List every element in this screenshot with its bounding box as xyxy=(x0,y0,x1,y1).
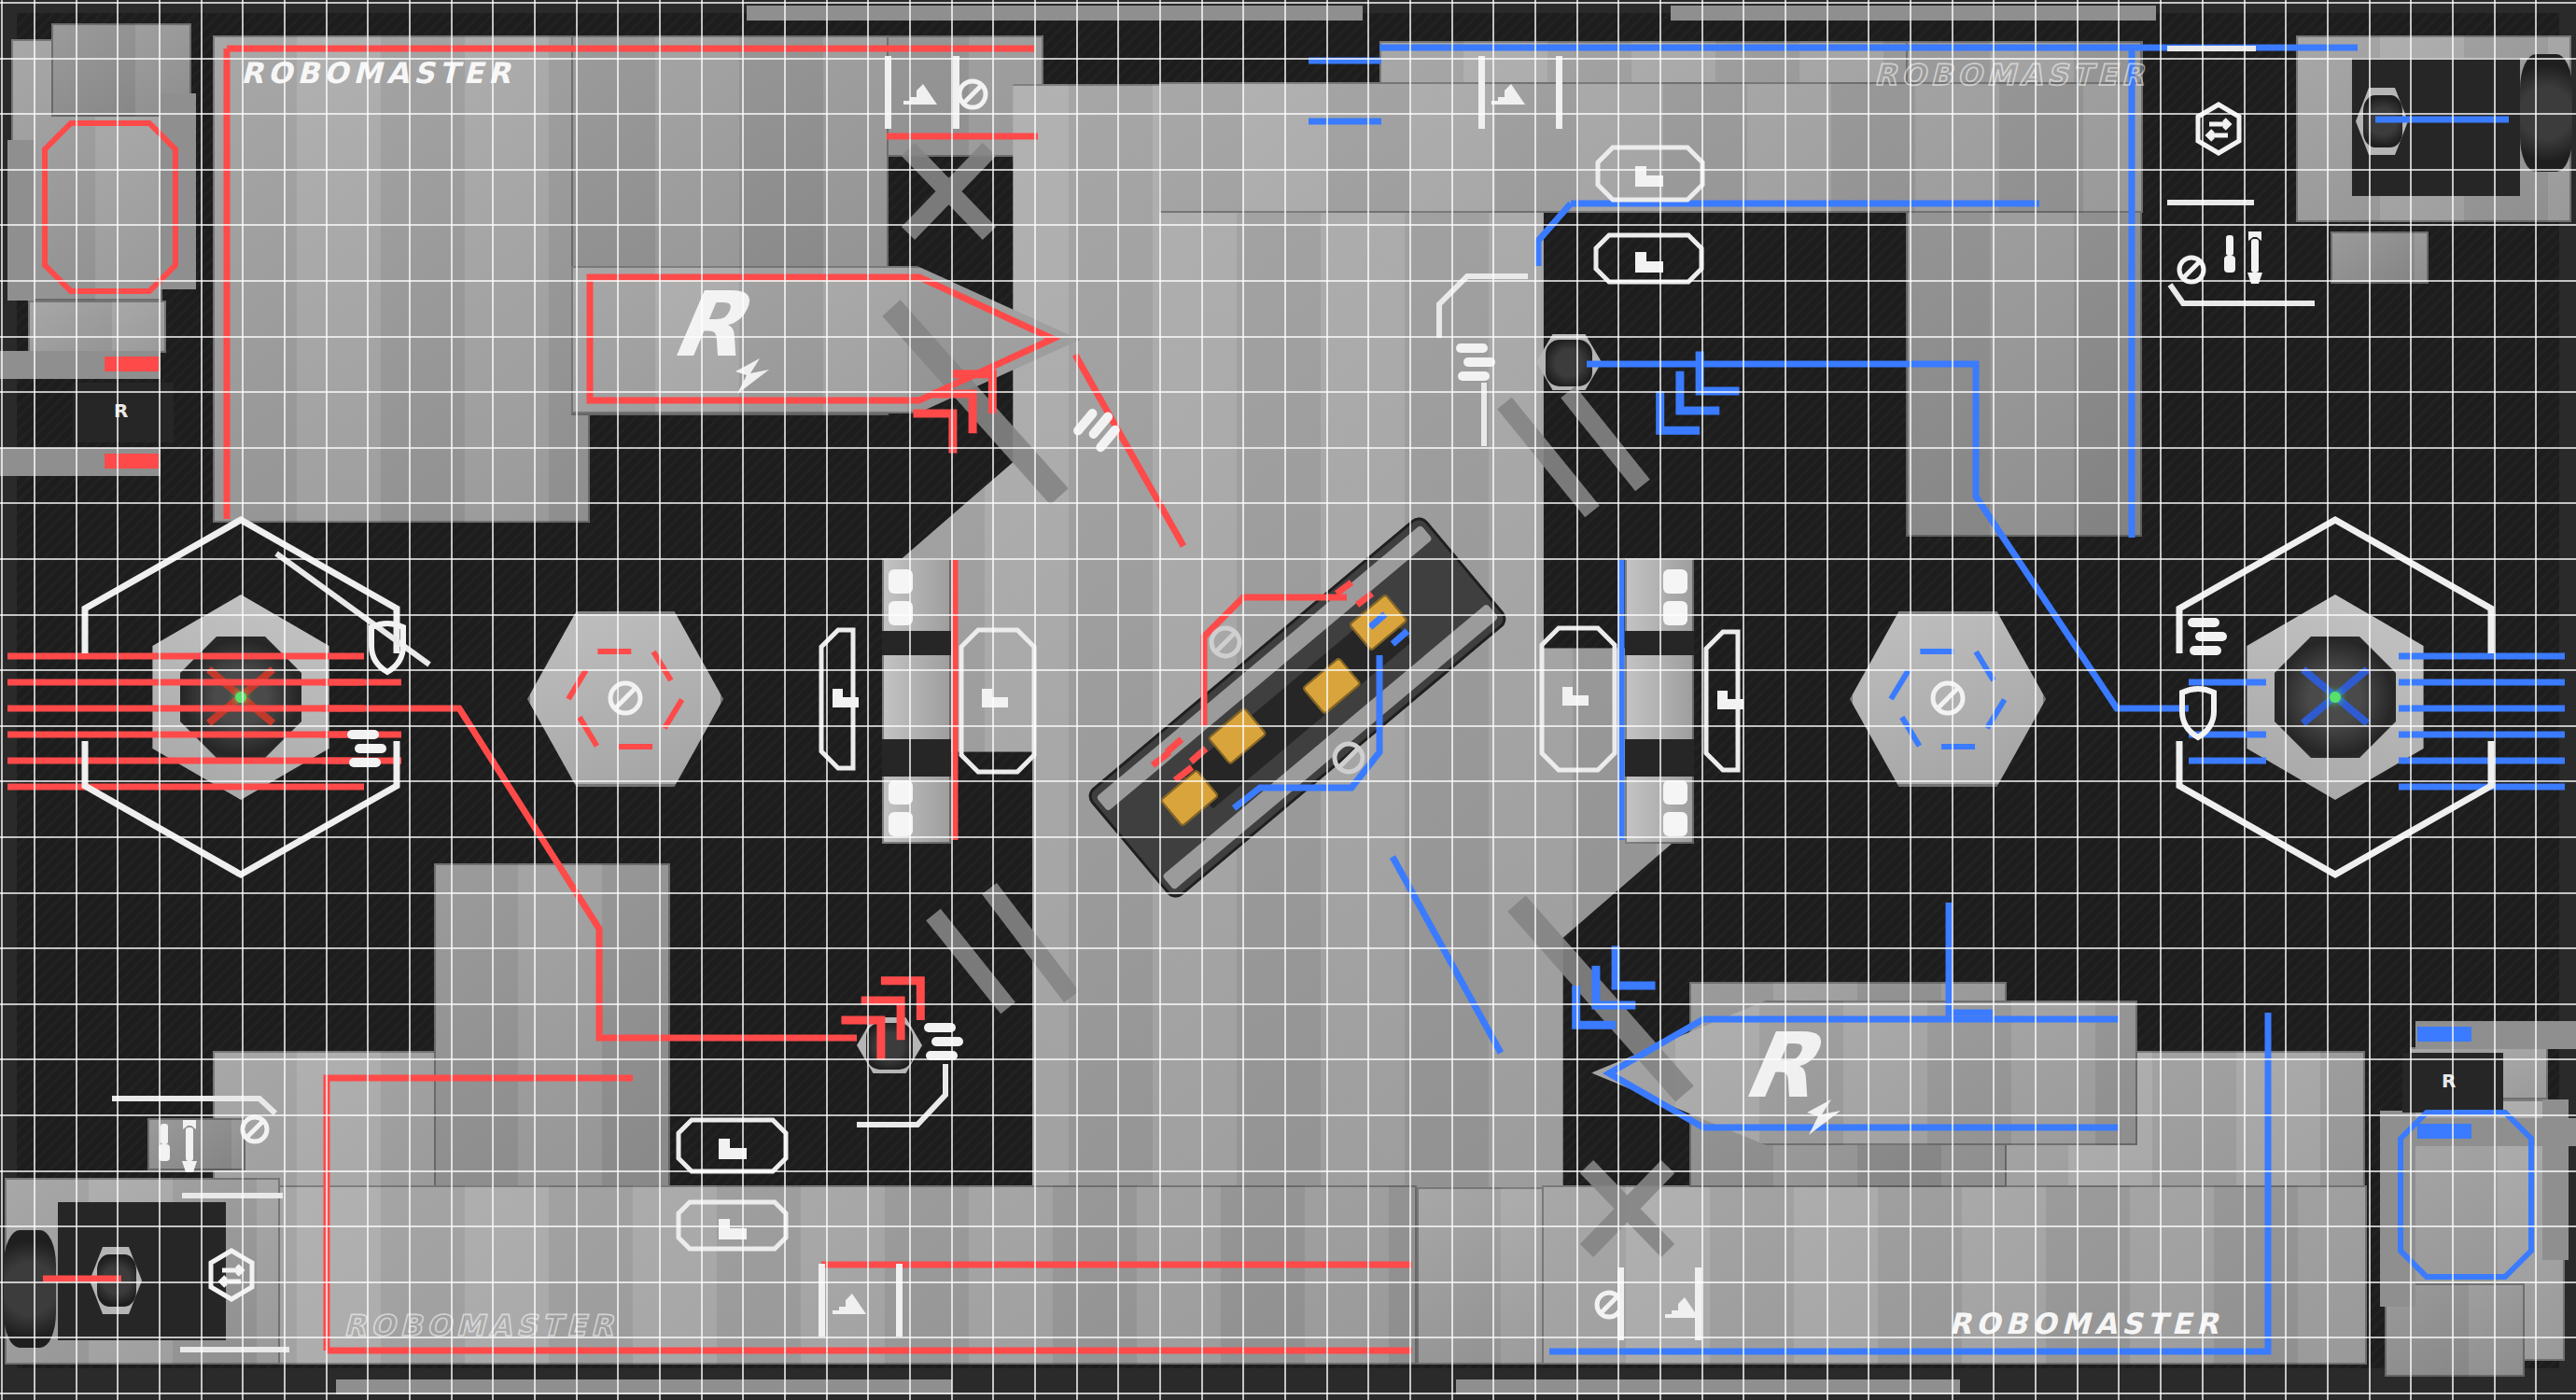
no-entry-icon xyxy=(959,81,986,107)
no-entry-icon xyxy=(1211,628,1239,656)
repair-tools-icon xyxy=(2224,231,2262,284)
no-entry-icon xyxy=(1335,744,1363,772)
exchange-station-icon xyxy=(211,1251,252,1299)
ammo-bullets-icon xyxy=(1071,401,1126,455)
no-entry-icons xyxy=(243,81,2204,1317)
blue-outpost-lines-right xyxy=(2399,656,2565,787)
blue-patrol-path xyxy=(1587,364,2189,708)
repair-tools-icon xyxy=(159,1120,197,1172)
shield-icons xyxy=(371,623,2214,737)
wordmark-top-left: ROBOMASTER xyxy=(241,56,515,90)
no-entry-icon xyxy=(610,683,640,713)
red-central-bracket xyxy=(1167,597,1347,762)
no-entry-icon xyxy=(2179,258,2204,282)
slope-icon xyxy=(903,84,937,105)
ammo-bullets-icon xyxy=(924,1023,963,1060)
wordmark-bottom-left: ROBOMASTER xyxy=(343,1309,618,1342)
no-entry-icon xyxy=(1933,683,1963,713)
blue-central-bracket xyxy=(1234,614,1407,808)
blue-outpost-lines-left xyxy=(2189,682,2266,761)
red-outpost-lines-left xyxy=(7,656,364,787)
shield-icon xyxy=(2182,689,2214,737)
red-patrol-path xyxy=(322,708,857,1038)
step-icons xyxy=(719,166,1743,1239)
blue-base-zone-outline xyxy=(2401,1113,2531,1277)
no-entry-icon xyxy=(243,1117,267,1141)
red-team-lines xyxy=(7,49,1412,1351)
ammo-bullets-icon xyxy=(2188,618,2227,655)
white-floor-lines xyxy=(112,49,2315,1350)
slope-icon xyxy=(1665,1297,1699,1318)
red-ramp-outline xyxy=(590,277,1053,400)
wordmark-bottom-right: ROBOMASTER xyxy=(1949,1307,2223,1340)
slope-icon xyxy=(1491,84,1525,105)
blue-team-lines xyxy=(1234,48,2565,1351)
red-base-zone-outline xyxy=(45,123,175,291)
outpost-zone-hexagons xyxy=(85,520,2491,875)
wordmark-top-right: ROBOMASTER xyxy=(1874,58,2149,91)
ammo-bullets-icon xyxy=(1456,343,1495,381)
exchange-station-icon xyxy=(2198,105,2239,153)
arena-canvas: R R xyxy=(0,0,2576,1400)
slope-icon xyxy=(833,1294,866,1314)
blue-ramp-outline xyxy=(1609,1019,2119,1127)
lightning-icon xyxy=(735,358,769,394)
